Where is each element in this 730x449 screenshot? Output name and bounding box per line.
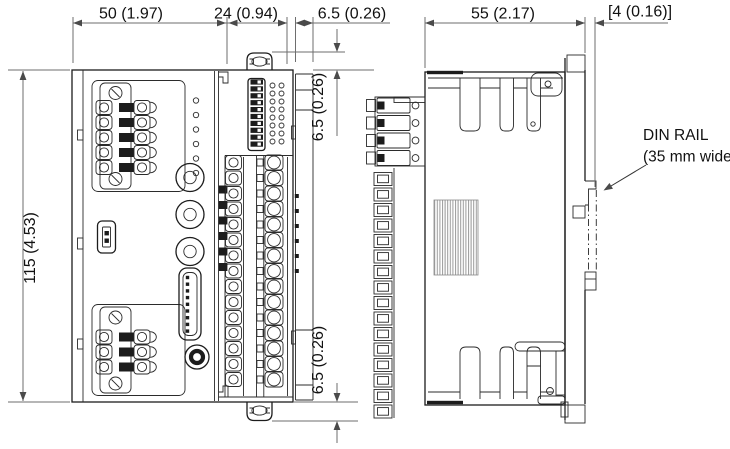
dim-rail-offset-label: [4 (0.16)]: [608, 4, 672, 21]
side-view: [367, 55, 597, 423]
left-flange: [78, 130, 84, 349]
rotary-knobs: [176, 164, 204, 266]
dim-side-depth-label: 55 (2.17): [471, 6, 535, 23]
release-latch: [515, 342, 585, 423]
din-rail-callout: DIN RAIL (35 mm wide): [602, 127, 730, 193]
din-rail-label-line2: (35 mm wide): [643, 149, 730, 166]
heatsink-fins-bottom: [428, 347, 553, 399]
face-screw: [531, 122, 535, 126]
leader-line: [606, 165, 646, 189]
terminal-block-upper: [92, 81, 185, 192]
dimension-lines: [23, 23, 668, 443]
top-latch-tab: [247, 53, 272, 70]
terminal-strip: [219, 155, 293, 397]
din-rail-label-line1: DIN RAIL: [643, 127, 709, 144]
led-matrix: [270, 83, 284, 144]
terminal-block-lower: [92, 305, 185, 396]
side-terminal-stack: [374, 168, 394, 418]
front-view: [72, 53, 313, 421]
din-rail-phantom: [589, 190, 597, 272]
leader-arrow: [602, 183, 613, 193]
heatsink-fins-top: [428, 78, 563, 131]
technical-drawing-page: 50 (1.97) 24 (0.94) 6.5 (0.26) 55 (2.17)…: [0, 0, 730, 449]
dim-flange-width-label: 6.5 (0.26): [318, 6, 386, 23]
dim-height-label: 115 (4.53): [22, 212, 39, 284]
din-rail-claw: [565, 55, 596, 420]
dim-front-width-label: 50 (1.97): [99, 6, 163, 23]
bottom-latch-tab: [247, 402, 272, 421]
dim-bottom-tab-label: 6.5 (0.26): [310, 326, 327, 394]
top-spring-latch: [531, 73, 562, 96]
label-area-hatch: [434, 200, 478, 275]
reset-button: [185, 345, 209, 369]
dim-mid-width-label: 24 (0.94): [214, 6, 278, 23]
toggle-switch: [98, 221, 116, 253]
dimension-drawing: 50 (1.97) 24 (0.94) 6.5 (0.26) 55 (2.17)…: [0, 0, 730, 449]
dip-switch-block: [248, 79, 265, 151]
connector-slot: [179, 268, 201, 340]
dim-top-tab-label: 6.5 (0.26): [310, 73, 327, 141]
side-terminal-block: [367, 97, 426, 166]
